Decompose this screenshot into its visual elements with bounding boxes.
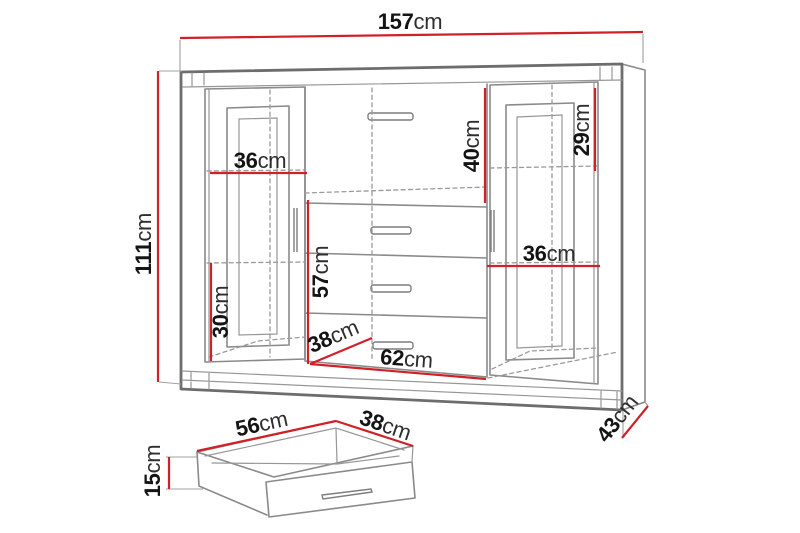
label-left-compartment-width: 36cm <box>234 148 287 173</box>
label-right-compartment-width: 36cm <box>523 241 576 266</box>
label-drawer-section-height: 57cm <box>308 246 333 299</box>
label-overall-height: 111cm <box>131 213 156 275</box>
label-center-section-width: 62cm <box>379 344 433 373</box>
drawer-handle-1 <box>371 227 411 234</box>
label-drawer-depth: 38cm <box>357 405 415 446</box>
label-drawer-height: 15cm <box>140 445 165 498</box>
label-drawer-width: 56cm <box>233 406 290 441</box>
drawer-front-panel <box>266 462 415 517</box>
label-overall-width: 157cm <box>378 9 443 34</box>
drawer-left-wall <box>197 452 267 515</box>
drawer-handle-2 <box>371 285 411 292</box>
flap-handle <box>368 113 413 120</box>
label-center-section-depth: 38cm <box>304 314 362 358</box>
label-right-top-section-height: 29cm <box>569 104 594 157</box>
drawer-right-edge <box>412 446 413 462</box>
label-left-bottom-section-height: 30cm <box>208 286 233 339</box>
furniture-dimension-diagram: 157cm 111cm 36cm 40cm 29cm 57cm 30cm 36c… <box>0 0 800 533</box>
label-top-section-height: 40cm <box>459 120 484 173</box>
cabinet-side-panel <box>622 64 645 410</box>
